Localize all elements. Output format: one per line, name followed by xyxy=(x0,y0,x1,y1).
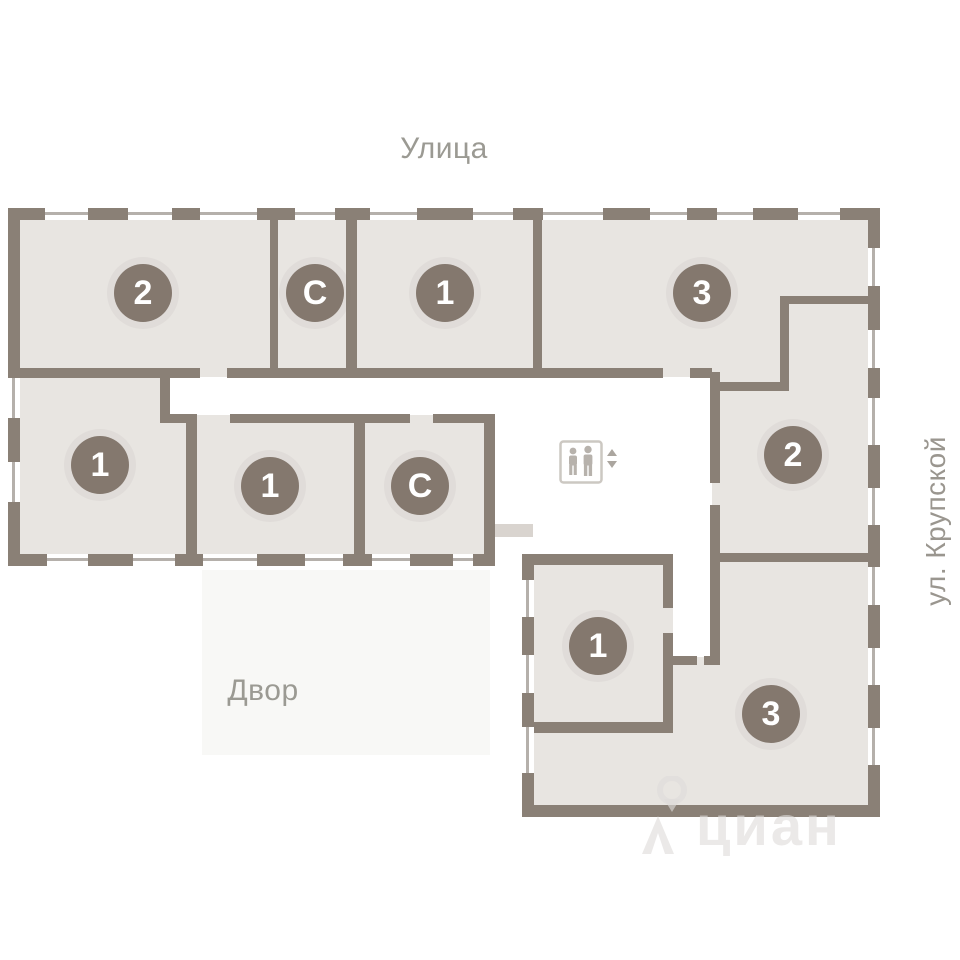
room-badge-2-top-left[interactable]: 2 xyxy=(114,264,172,322)
elevator-people-icon xyxy=(559,440,621,486)
street-top-label: Улица xyxy=(384,132,504,166)
room-badge-1-bottom[interactable]: 1 xyxy=(569,617,627,675)
room-badge-s-top[interactable]: С xyxy=(286,264,344,322)
room-badge-3-bottom[interactable]: 3 xyxy=(742,685,800,743)
floorplan-page: Улица Двор ул. Крупской 2 С 1 3 1 1 С 2 … xyxy=(0,0,960,960)
room-badge-1-top[interactable]: 1 xyxy=(416,264,474,322)
room-badge-s-mid[interactable]: С xyxy=(391,457,449,515)
room-badge-2-right[interactable]: 2 xyxy=(764,426,822,484)
courtyard-label: Двор xyxy=(203,674,323,708)
up-down-arrows-icon xyxy=(607,449,617,468)
street-right-label: ул. Крупской xyxy=(920,411,952,631)
room-badge-3-top-right[interactable]: 3 xyxy=(673,264,731,322)
courtyard-area xyxy=(202,570,490,755)
room-badge-1-mid[interactable]: 1 xyxy=(241,457,299,515)
room-badge-1-mid-left[interactable]: 1 xyxy=(71,436,129,494)
